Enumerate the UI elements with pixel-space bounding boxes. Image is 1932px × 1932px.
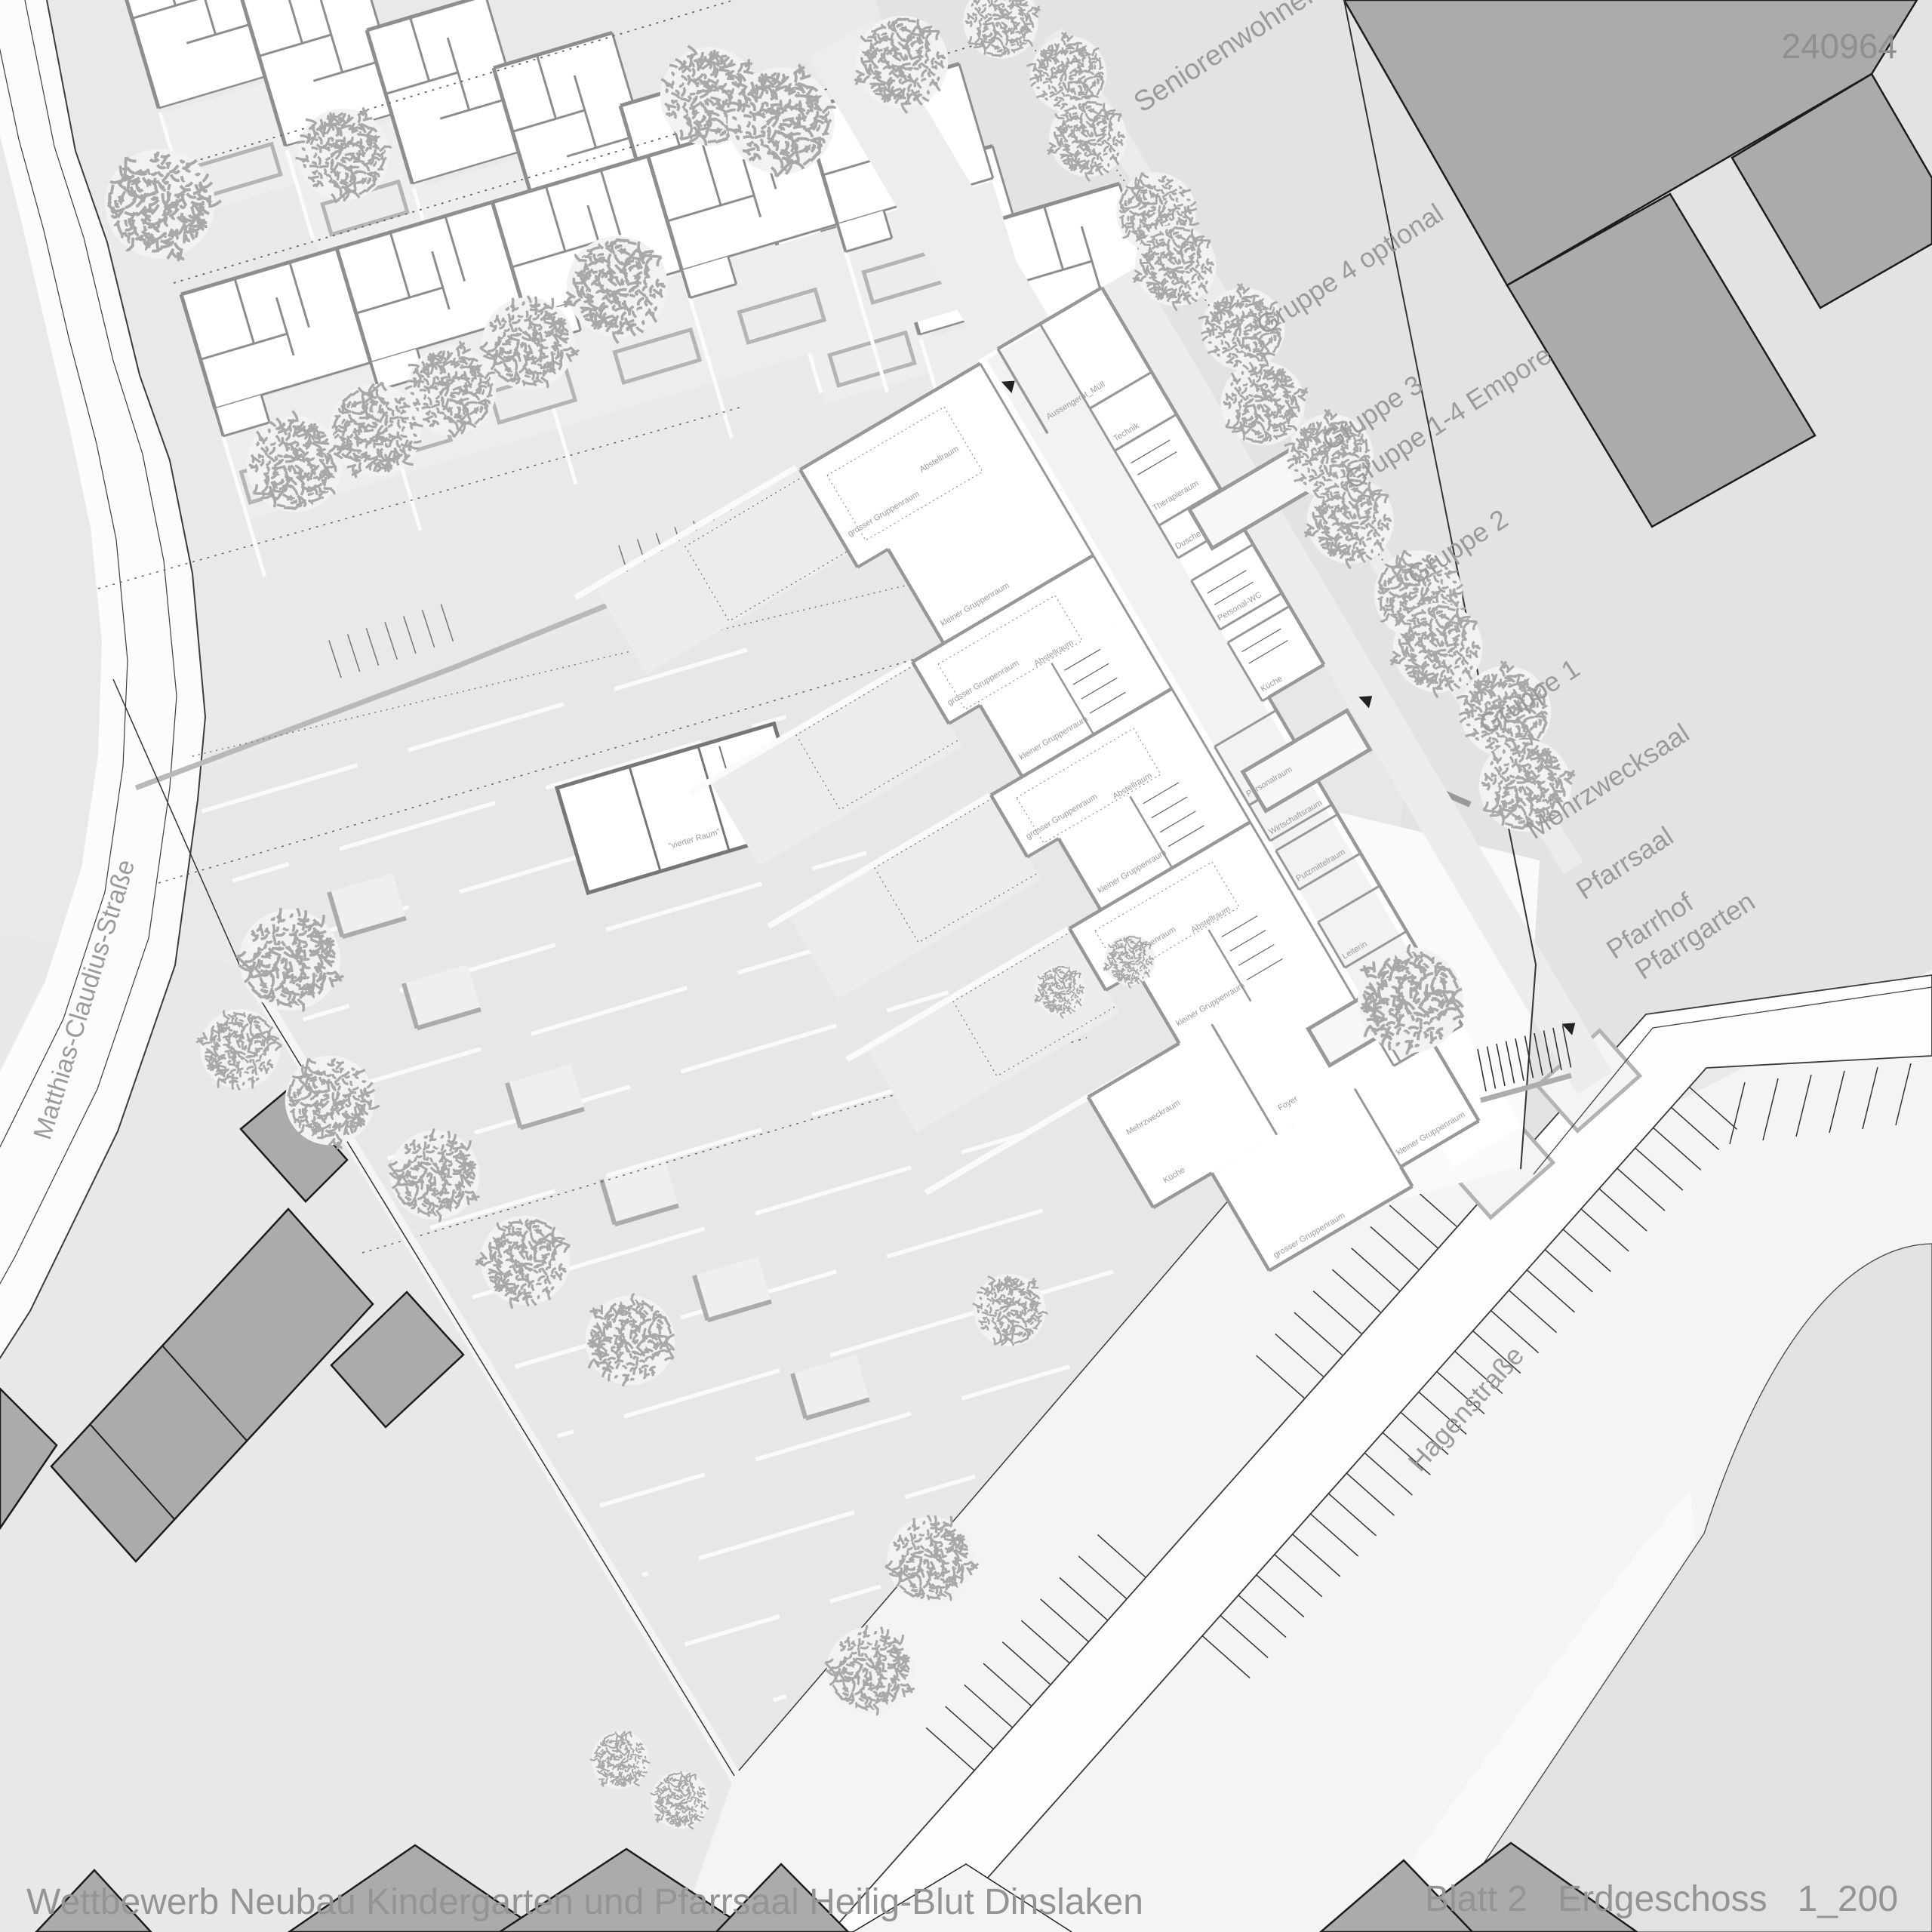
- svg-text:Blatt 2 Erdgeschoss 1_200: Blatt 2 Erdgeschoss 1_200: [1425, 1879, 1898, 1919]
- svg-text:Wettbewerb Neubau Kindergarten: Wettbewerb Neubau Kindergarten und Pfarr…: [26, 1882, 1143, 1922]
- svg-text:240964: 240964: [1782, 26, 1898, 66]
